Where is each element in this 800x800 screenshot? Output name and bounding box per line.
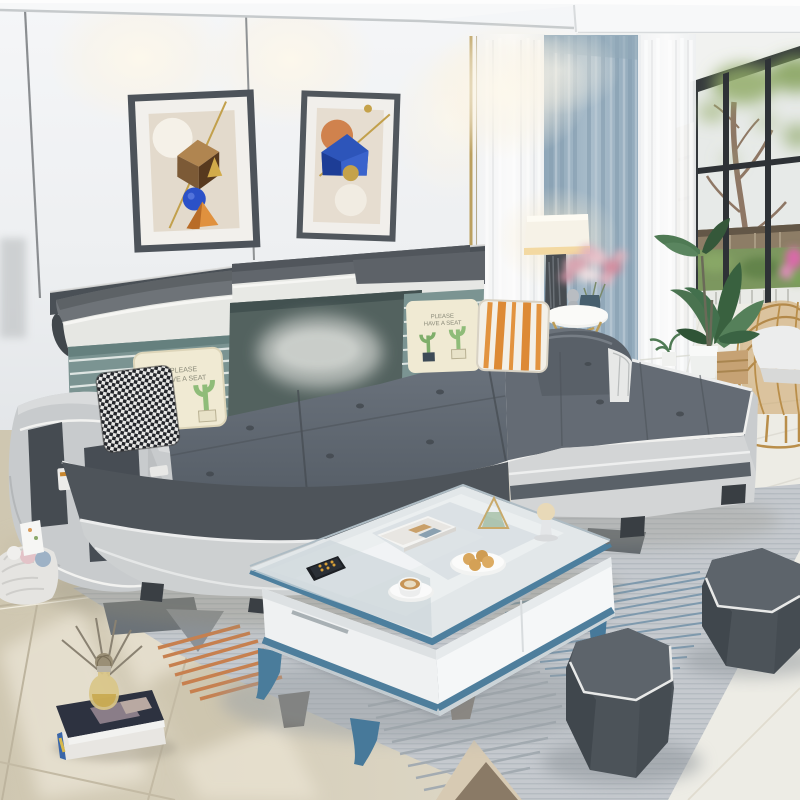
svg-text:PLEASE: PLEASE: [431, 314, 455, 321]
